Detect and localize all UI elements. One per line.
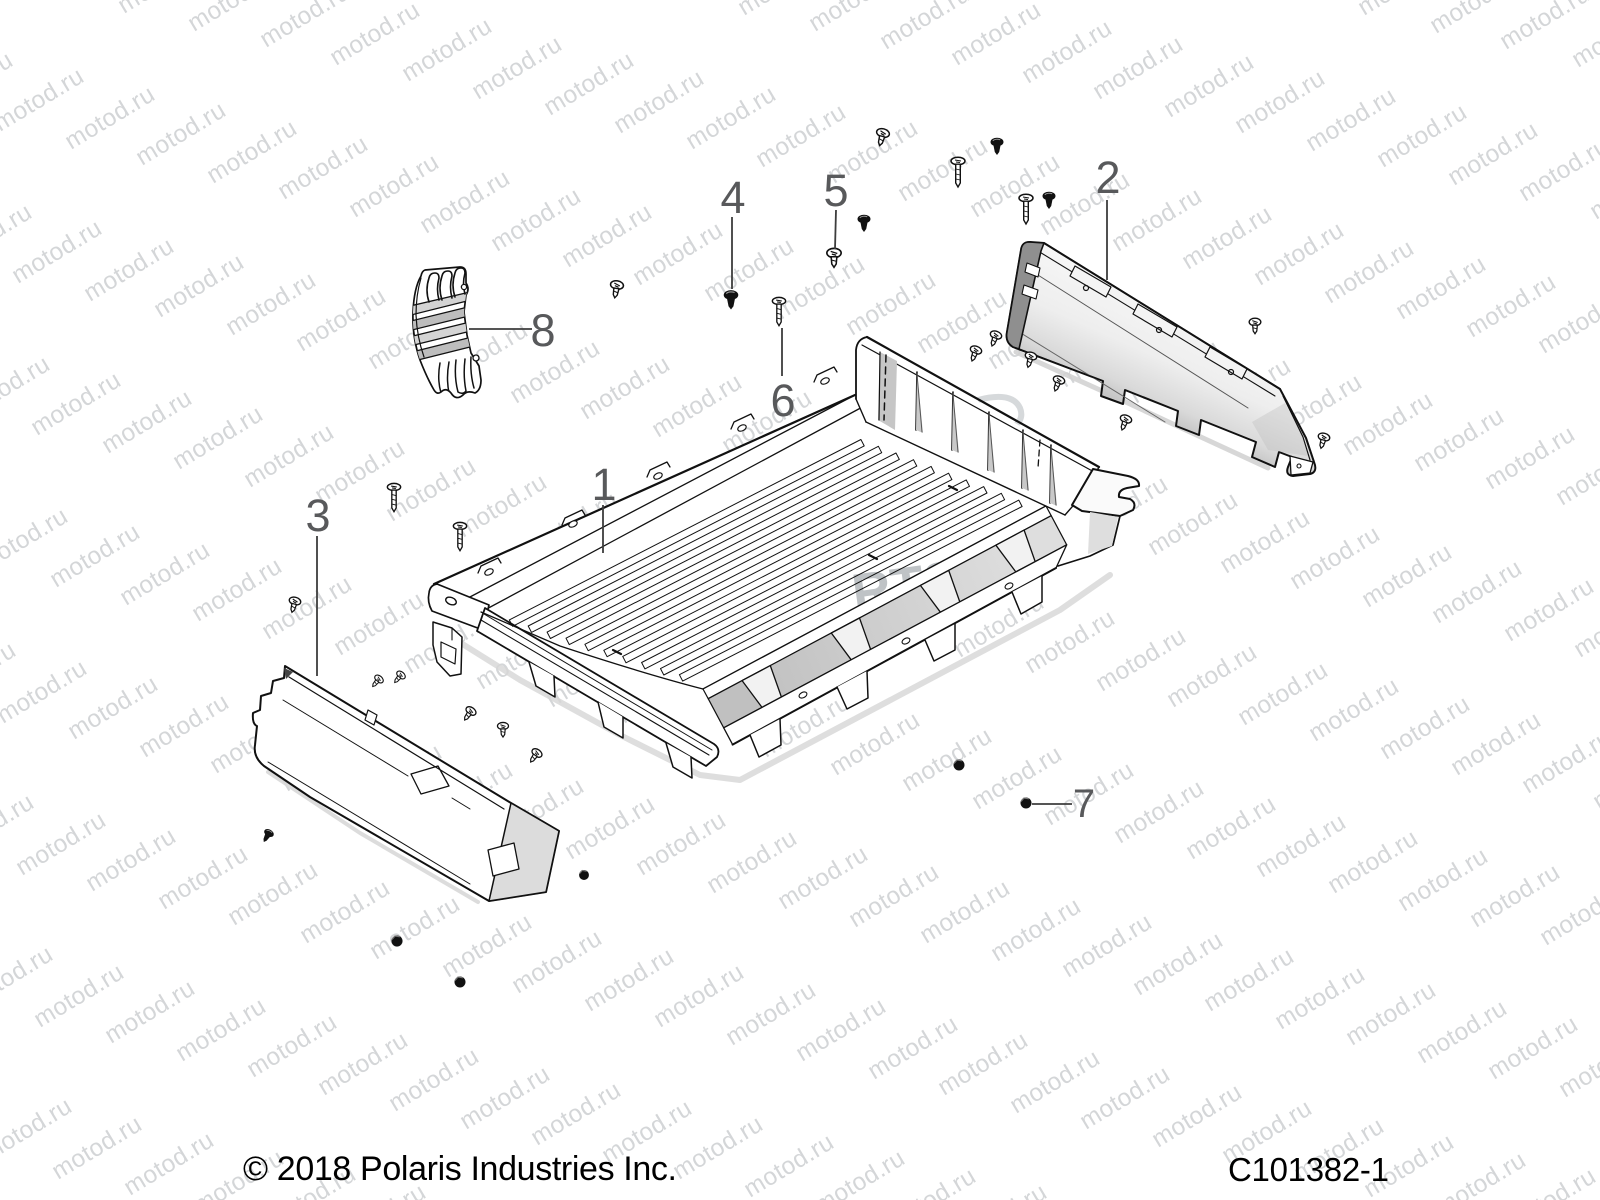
svg-text:7: 7 bbox=[1073, 782, 1095, 826]
svg-text:5: 5 bbox=[823, 165, 848, 216]
svg-text:4: 4 bbox=[720, 172, 745, 223]
svg-text:© 2018 Polaris Industries Inc.: © 2018 Polaris Industries Inc. bbox=[243, 1150, 677, 1188]
svg-text:C101382-1: C101382-1 bbox=[1228, 1151, 1389, 1188]
svg-text:2: 2 bbox=[1095, 152, 1120, 203]
svg-text:1: 1 bbox=[591, 459, 616, 510]
svg-text:6: 6 bbox=[770, 375, 795, 426]
svg-text:3: 3 bbox=[305, 490, 330, 541]
svg-text:8: 8 bbox=[530, 305, 555, 356]
